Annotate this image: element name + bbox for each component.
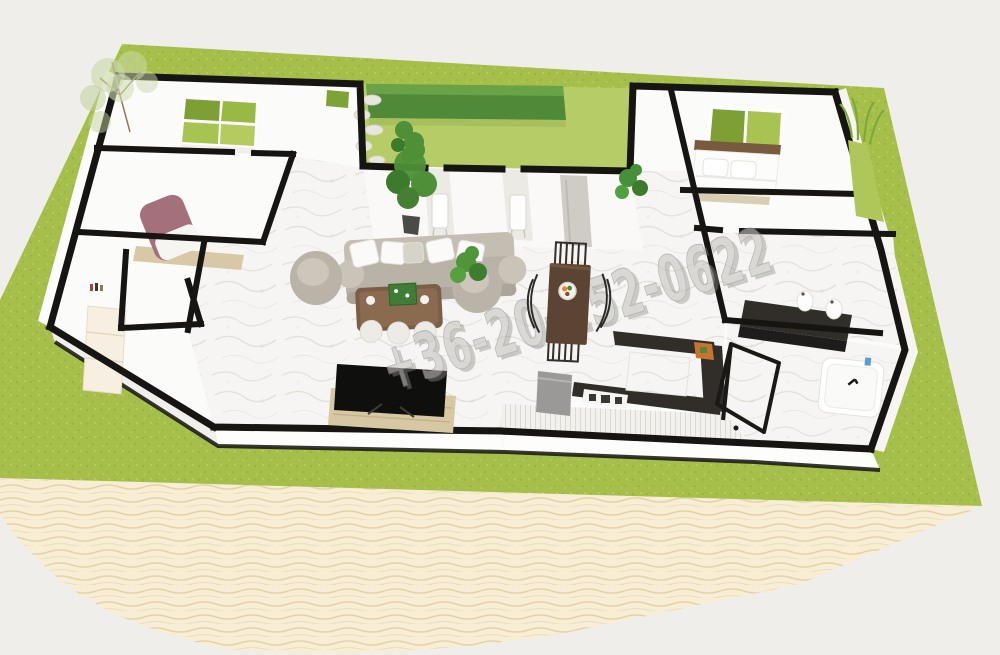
fruit-bowl bbox=[559, 282, 577, 300]
hall-mirror bbox=[560, 175, 592, 247]
bed-pillow bbox=[703, 158, 729, 176]
sink bbox=[826, 299, 842, 319]
bed-pillow bbox=[731, 160, 757, 178]
kitchen-island bbox=[626, 352, 690, 396]
bathtub bbox=[817, 353, 885, 418]
window-top-left-room bbox=[180, 96, 259, 154]
dining-table bbox=[546, 263, 591, 345]
toiletries bbox=[864, 357, 871, 366]
green-tray bbox=[389, 283, 417, 305]
sink bbox=[797, 291, 813, 311]
hedge-top-highlight bbox=[366, 84, 564, 96]
courtyard bbox=[354, 84, 630, 170]
green-door-mat bbox=[326, 90, 349, 108]
armchair-left bbox=[290, 251, 342, 305]
floorplan-render: +36-20-252-0622 +36-20-252-0622 bbox=[0, 0, 1000, 655]
